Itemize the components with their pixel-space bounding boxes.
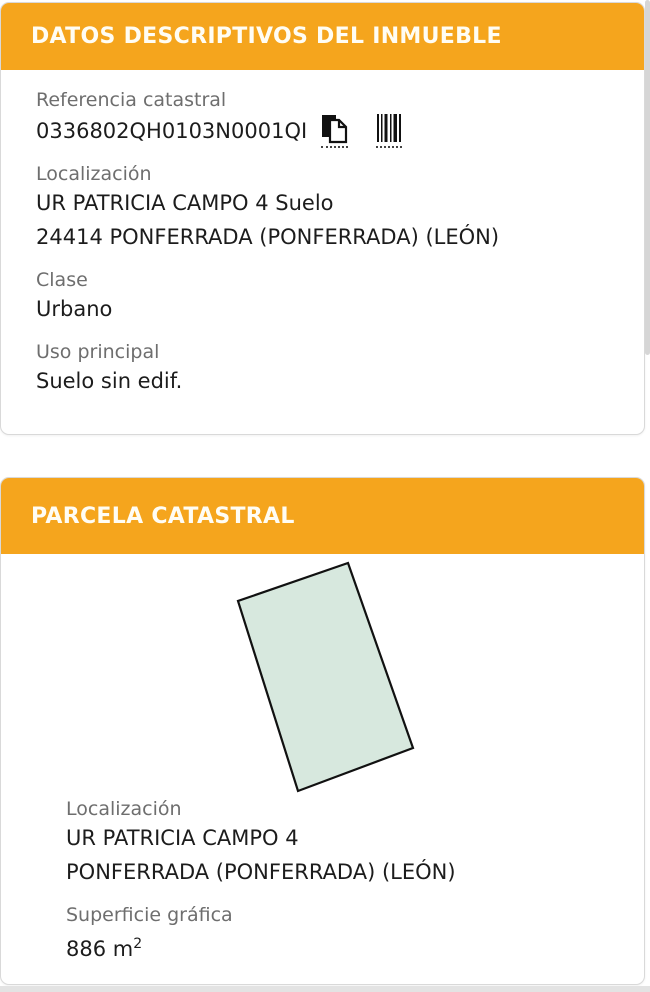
card-body: Localización UR PATRICIA CAMPO 4 PONFERR…: [1, 794, 644, 966]
section-header-parcela-catastral: PARCELA CATASTRAL: [1, 478, 644, 554]
parcel-sketch: [1, 554, 644, 794]
uso-value: Suelo sin edif.: [36, 364, 624, 398]
field-label: Superficie gráfica: [66, 903, 624, 927]
localizacion-line1: UR PATRICIA CAMPO 4 Suelo: [36, 186, 624, 220]
clase-value: Urbano: [36, 292, 624, 326]
field-label: Localización: [66, 797, 624, 821]
field-clase: Clase Urbano: [36, 268, 624, 326]
localizacion-line2: PONFERRADA (PONFERRADA) (LEÓN): [66, 855, 624, 889]
superscript-2: 2: [133, 936, 142, 952]
barcode-icon: [376, 129, 402, 148]
section-title: PARCELA CATASTRAL: [31, 504, 295, 529]
field-label: Localización: [36, 162, 624, 186]
copy-documents-icon: [321, 129, 348, 148]
card-body: Referencia catastral 0336802QH0103N0001Q…: [1, 70, 644, 398]
referencia-row: 0336802QH0103N0001QI: [36, 114, 624, 148]
section-title: DATOS DESCRIPTIVOS DEL INMUEBLE: [31, 24, 502, 49]
localizacion-line2: 24414 PONFERRADA (PONFERRADA) (LEÓN): [36, 220, 624, 254]
field-label: Uso principal: [36, 340, 624, 364]
field-localizacion-parcela: Localización UR PATRICIA CAMPO 4 PONFERR…: [66, 797, 624, 889]
barcode-button[interactable]: [376, 114, 402, 148]
localizacion-line1: UR PATRICIA CAMPO 4: [66, 821, 624, 855]
parcel-polygon: [238, 563, 413, 791]
card-datos-descriptivos: DATOS DESCRIPTIVOS DEL INMUEBLE Referenc…: [0, 2, 645, 435]
field-uso-principal: Uso principal Suelo sin edif.: [36, 340, 624, 398]
field-label: Clase: [36, 268, 624, 292]
field-superficie-grafica: Superficie gráfica 886 m2: [66, 903, 624, 966]
card-parcela-catastral: PARCELA CATASTRAL Localización UR PATRIC…: [0, 477, 645, 985]
referencia-value: 0336802QH0103N0001QI: [36, 114, 307, 148]
field-localizacion: Localización UR PATRICIA CAMPO 4 Suelo 2…: [36, 162, 624, 254]
superficie-value: 886 m2: [66, 927, 624, 966]
field-referencia-catastral: Referencia catastral 0336802QH0103N0001Q…: [36, 88, 624, 148]
scrollbar-thumb[interactable]: [645, 0, 650, 355]
page-background-strip: [0, 986, 650, 992]
copy-referencia-button[interactable]: [321, 114, 348, 148]
section-header-datos-descriptivos: DATOS DESCRIPTIVOS DEL INMUEBLE: [1, 3, 644, 70]
field-label: Referencia catastral: [36, 88, 624, 112]
